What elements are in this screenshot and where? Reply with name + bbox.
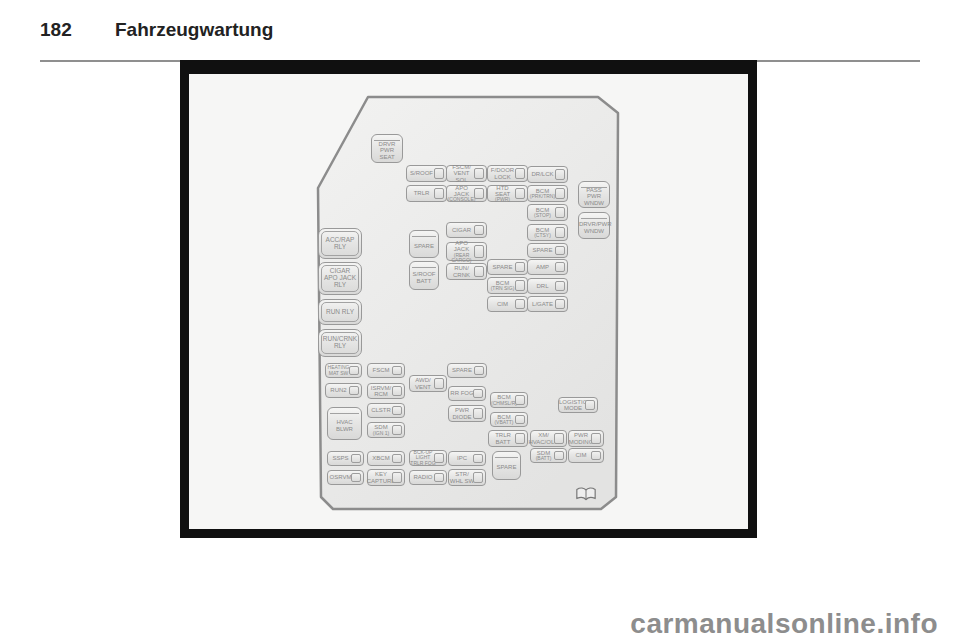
- fuse-l-gate: L/GATE: [527, 296, 568, 312]
- fuse-trlr: TRLR: [406, 185, 447, 202]
- fuse-bcm-ctsy: BCM(CTSY): [527, 224, 568, 241]
- fuse-isrvm-rcm: ISRVM/RCM: [367, 383, 405, 399]
- page-number: 182: [40, 19, 72, 41]
- fuse-bcm-vbatt: BCM(VBATT): [490, 412, 528, 427]
- fuse-bcm-stop: BCM(STOP): [527, 204, 568, 221]
- fuse-f-door-lock: F/DOORLOCK: [487, 165, 528, 182]
- fuse-cigar-apo-jack-rly: CIGARAPO JACKRLY: [318, 262, 362, 295]
- fuse-cim-2: CIM: [568, 448, 604, 463]
- fuse-cigar: CIGAR: [446, 222, 487, 238]
- fuse-dr-lck: DR/LCK: [527, 166, 568, 183]
- fuse-awd-vent: AWD/VENT: [409, 375, 447, 392]
- fuse-osrvm: OSRVM: [327, 470, 364, 485]
- fuse-bcm-trn-sig: BCM(TRN SIG): [487, 277, 528, 294]
- fuse-s-roof: S/ROOF: [406, 165, 447, 182]
- fuse-fscm-vent-sol: FSCM/VENT SOL: [446, 165, 487, 182]
- fuse-run-rly: RUN RLY: [318, 299, 362, 325]
- fuse-logistic-mode: LOGISTICMODE: [558, 397, 598, 413]
- fuse-s-roof-batt: S/ROOFBATT: [409, 261, 439, 290]
- fuse-str-whl-sw: STR/WHL SW: [448, 469, 486, 486]
- fuse-run-crnk: RUN/CRNK: [446, 263, 487, 280]
- fuse-run-crnk-rly: RUN/CRNKRLY: [318, 329, 362, 357]
- fuse-apo-jack-console: APO JACK(CONSOLE): [446, 185, 487, 202]
- fuse-radio: RADIO: [409, 470, 447, 485]
- fuse-bcm-chmsl-r: BCM(CHMSL/R): [490, 392, 528, 408]
- fuse-key-capture: KEYCAPTURE: [367, 469, 405, 486]
- fuse-ipc: IPC: [448, 451, 486, 466]
- page-title: Fahrzeugwartung: [115, 19, 273, 41]
- fuse-amp: AMP: [527, 259, 568, 275]
- fuse-drvr-pwr-wndw: DRVR/PWRWNDW: [578, 212, 610, 239]
- fuse-pass-pwr-wndw: PASSPWRWNDW: [578, 181, 610, 208]
- fuse-rr-fog: RR FOG: [448, 386, 486, 401]
- fuse-drvr-pwr-seat: DRVRPWRSEAT: [371, 134, 403, 163]
- fuse-clstr: CLSTR: [367, 403, 405, 418]
- fuse-spare-5: SPARE: [492, 451, 521, 480]
- fuse-spare-1: SPARE: [409, 230, 439, 258]
- fuse-xm-hvac-olc: XM/HVAC/OLC: [530, 430, 567, 447]
- fuse-sdm-batt: SDM(BATT): [530, 448, 567, 463]
- fuse-pwr-diode: PWRDIODE: [448, 405, 486, 422]
- fuse-bcm-prk-trn: BCM(PRK/TRN): [527, 185, 568, 202]
- fuse-spare-4: SPARE: [447, 363, 487, 378]
- fuse-trlr-batt: TRLRBATT: [488, 430, 528, 447]
- fuse-pwr-moding: PWRMODING: [568, 430, 604, 447]
- fuse-run2: RUN2: [325, 383, 362, 398]
- fuse-xbcm: XBCM: [367, 451, 405, 466]
- fuse-spare-2: SPARE: [527, 243, 568, 258]
- fuse-cim-1: CIM: [487, 296, 528, 312]
- fuse-ssps: SSPS: [327, 451, 364, 466]
- fuse-acc-rap-rly: ACC/RAPRLY: [318, 228, 362, 259]
- fuse-fscm: FSCM: [367, 363, 405, 378]
- fuse-htd-seat-pwr: HTD SEAT(PWR): [487, 185, 528, 202]
- fuse-drl: DRL: [527, 278, 568, 294]
- fuse-heating-mat-sw: HEATINGMAT SW: [325, 363, 362, 378]
- fuse-spare-3: SPARE: [487, 259, 528, 275]
- fuse-hvac-blwr: HVACBLWR: [327, 407, 362, 440]
- fuse-bckup-light-trlr-fog: BCK-UP LIGHTTRLR FOG: [409, 450, 447, 466]
- fuse-apo-jack-rear-cargo: APO JACK(REARCARGO): [446, 242, 487, 261]
- fuse-sdm-ign1: SDM(IGN 1): [367, 422, 405, 438]
- open-book-icon: [575, 486, 597, 502]
- watermark: carmanualsonline.info: [630, 608, 938, 640]
